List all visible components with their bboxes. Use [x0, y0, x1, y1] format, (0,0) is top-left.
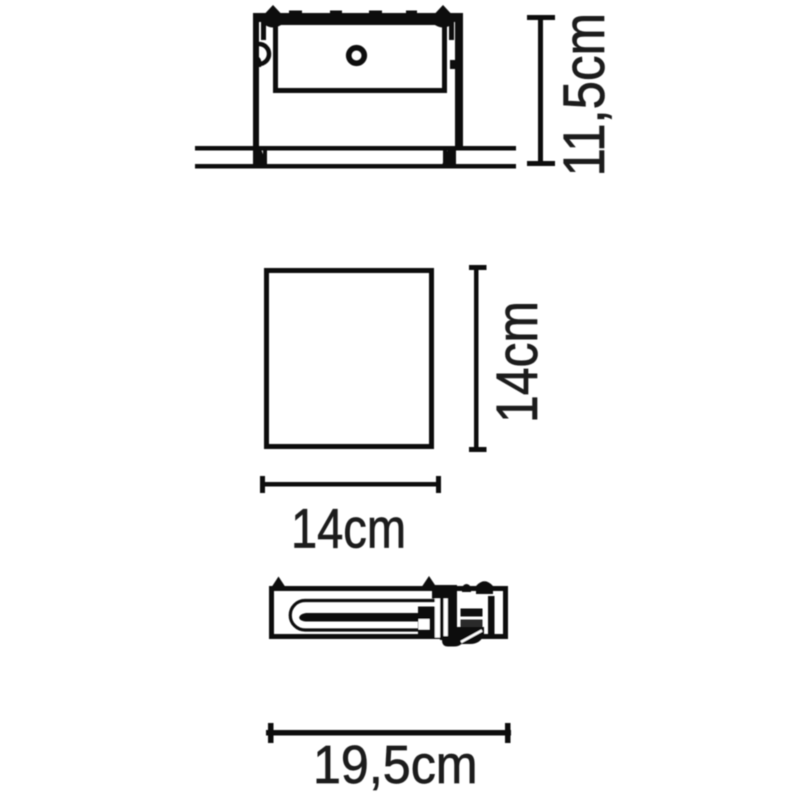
svg-text:14cm: 14cm	[486, 301, 550, 423]
svg-text:14cm: 14cm	[291, 497, 406, 560]
svg-text:19,5cm: 19,5cm	[313, 735, 478, 795]
svg-text:11,5cm: 11,5cm	[552, 13, 617, 177]
